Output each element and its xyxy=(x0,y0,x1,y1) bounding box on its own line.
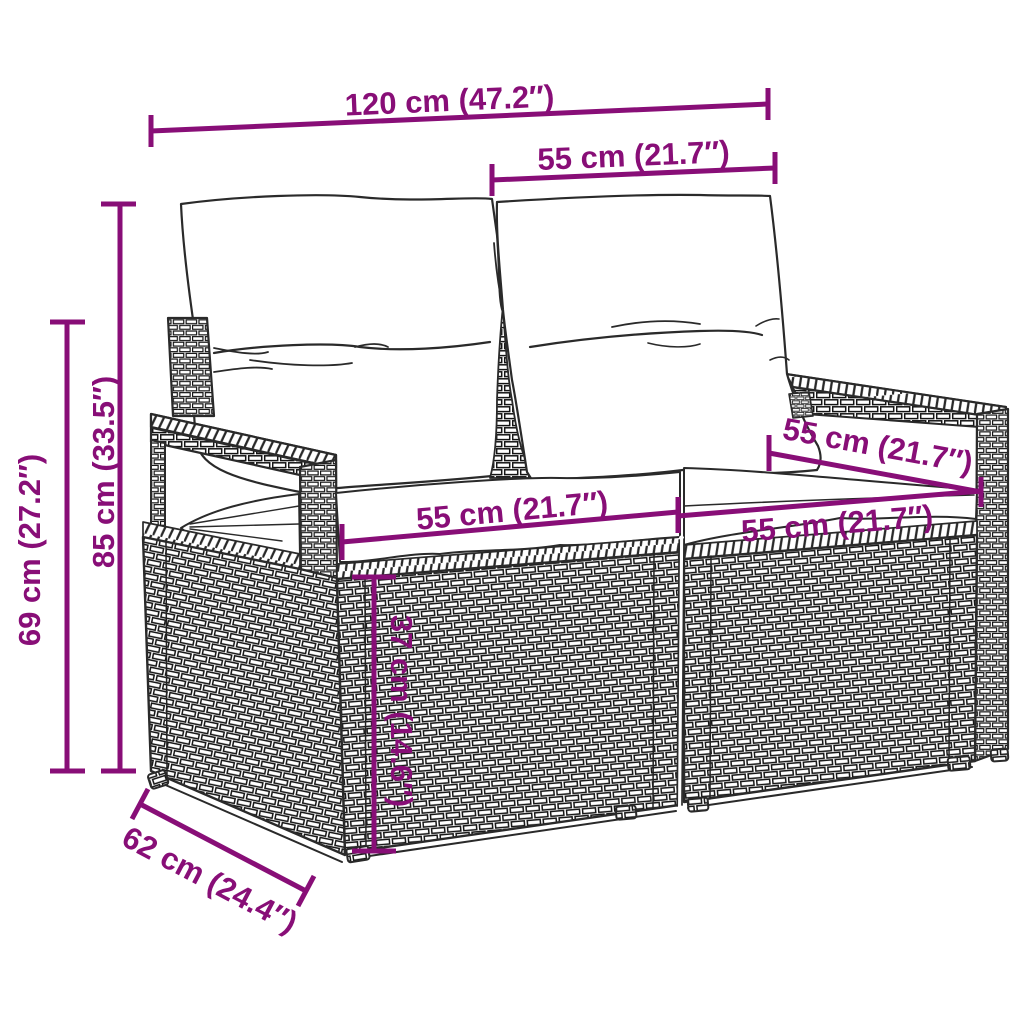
svg-text:69 cm (27.2″): 69 cm (27.2″) xyxy=(12,454,47,646)
svg-text:37 cm (14.6″): 37 cm (14.6″) xyxy=(384,615,419,807)
svg-text:85 cm (33.5″): 85 cm (33.5″) xyxy=(86,376,121,568)
